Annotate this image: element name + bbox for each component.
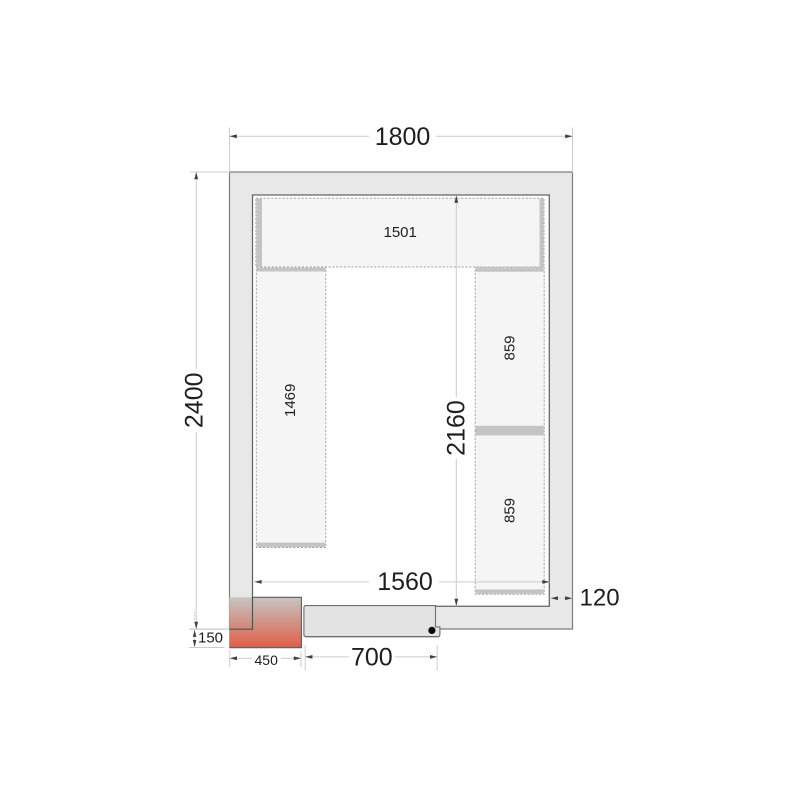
svg-text:700: 700	[351, 643, 393, 671]
svg-text:859: 859	[502, 335, 519, 360]
svg-text:1800: 1800	[375, 123, 431, 151]
svg-text:2160: 2160	[442, 400, 470, 456]
svg-text:120: 120	[580, 585, 620, 612]
svg-text:450: 450	[255, 652, 279, 668]
svg-text:150: 150	[198, 630, 223, 647]
svg-text:2400: 2400	[181, 372, 209, 428]
svg-text:1560: 1560	[377, 568, 433, 596]
svg-text:859: 859	[502, 498, 519, 523]
svg-text:1501: 1501	[384, 224, 417, 241]
svg-text:1469: 1469	[282, 384, 299, 417]
